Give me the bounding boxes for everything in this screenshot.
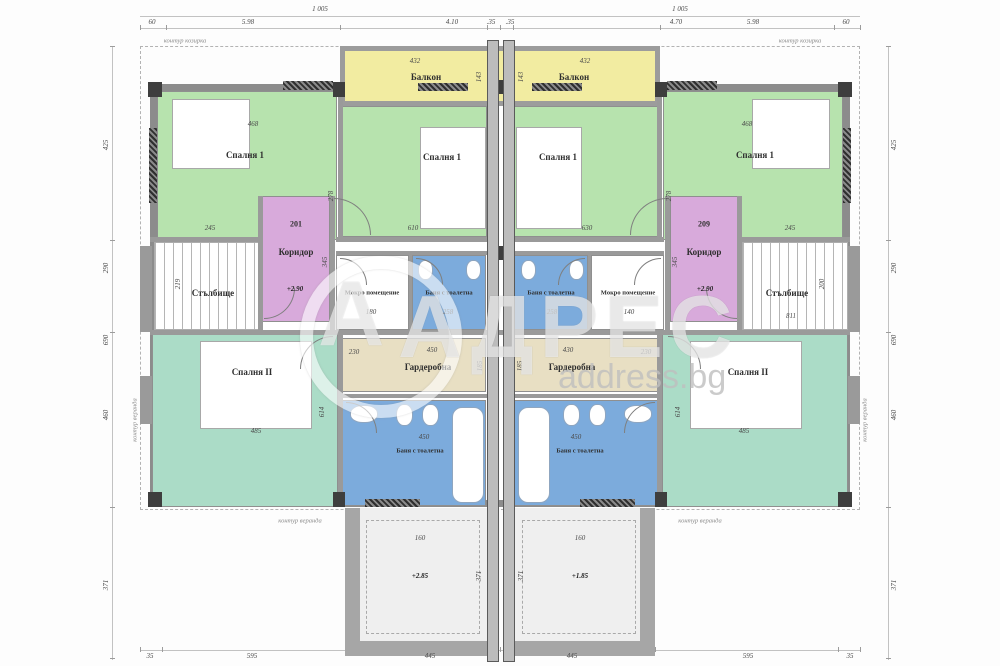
dim-left: 290 [102,263,110,274]
note-veranda: контур веранда [678,518,721,525]
column [838,492,852,507]
dim-tick [500,647,501,652]
room-label: Спалня II [728,367,769,377]
level-mark: +2.90 [287,285,303,293]
dim-tick [660,25,661,30]
room-label: Баня с тоалетна [425,290,472,297]
dim-label: 371 [517,571,525,582]
note-veranda: контур веранда [278,518,321,525]
bed [200,341,312,429]
dimension-line [140,16,860,17]
dim-label: 610 [408,224,419,232]
room-label: Спалня 1 [539,152,577,162]
column [148,82,162,97]
dim-label: 185 [476,361,484,372]
balcony-block [340,46,660,106]
wall-bump [140,246,152,332]
dim-tick [886,658,891,659]
dim-tick [860,25,861,30]
column [838,82,852,97]
dim-right: 371 [890,580,898,591]
window-hatch [283,81,333,90]
dim-top: 4.10 [446,18,458,26]
wall-segment [150,237,262,242]
dim-left: 460 [102,410,110,421]
dim-label: 450 [571,433,582,441]
dim-left: 690 [102,335,110,346]
room-label: Спалня 1 [226,150,264,160]
wall-bump [848,376,860,424]
note-veranda: контур веранда [862,398,869,441]
dim-tick [834,25,835,30]
wall-segment [342,394,487,398]
dim-label: 185 [516,361,524,372]
dim-tick [110,658,115,659]
room-label: Коридор [687,247,722,257]
dim-tick [110,240,115,241]
toilet [396,404,413,426]
dim-tick [110,507,115,508]
wall-segment [258,196,263,330]
dim-label: 430 [563,346,574,354]
toilet [563,404,580,426]
dim-label: 160 [575,534,586,542]
dim-tick [838,647,839,652]
window-hatch [418,83,468,91]
dim-top: .35 [506,18,515,26]
room-label: Спалня 1 [736,150,774,160]
dimension-line [888,46,889,660]
dim-tick [886,46,891,47]
bed [690,341,802,429]
wall-segment [588,255,591,330]
dim-label: 614 [318,407,326,418]
room-label: Гардеробна [549,362,596,372]
dim-top: .35 [487,18,496,26]
wall-segment [657,332,662,507]
bed [516,127,582,229]
room-label: Баня с тоалетна [396,448,443,455]
window-hatch [667,81,717,90]
dim-overall: 1 005 [672,5,688,13]
wall-segment [409,255,412,330]
dim-right: 460 [890,410,898,421]
room-label: Коридор [279,247,314,257]
dim-right: 690 [890,335,898,346]
wall-bump [140,376,152,424]
dim-label: 140 [624,308,635,316]
bathtub [452,407,484,503]
room-label: Стълбище [766,288,808,298]
dim-label: 143 [475,72,483,83]
column [655,492,667,507]
dim-label: 432 [410,57,421,65]
dim-label: 630 [582,224,593,232]
dim-label: 278 [327,191,335,202]
dim-label: 345 [321,257,329,268]
note-canopy: контур козирка [164,38,207,45]
toilet [589,404,606,426]
dim-tick [886,507,891,508]
room-label: Стълбище [192,288,234,298]
dim-tick [140,647,141,652]
room-label: Мокро помещение [601,290,655,297]
dim-label: 468 [742,120,753,128]
dimension-line [112,46,113,660]
room-staircase-left [154,242,260,330]
dim-label: 345 [671,257,679,268]
dim-tick [110,332,115,333]
dim-left: 425 [102,140,110,151]
dim-tick [110,46,115,47]
dim-label: 143 [517,72,525,83]
room-number: 201 [290,220,302,229]
level-mark: +2.85 [412,572,428,580]
dim-bottom: 595 [743,652,754,660]
dim-tick [886,332,891,333]
window-hatch [149,128,157,203]
dim-label: 258 [443,308,454,316]
toilet [422,404,439,426]
dim-label: 811 [786,312,796,320]
dim-tick [886,240,891,241]
dim-bottom: 445 [425,652,436,660]
wall-segment [336,237,487,242]
dim-bottom: 445 [567,652,578,660]
room-label: Балкон [411,72,441,82]
dim-label: 468 [248,120,259,128]
dim-tick [166,25,167,30]
dim-bottom: 35 [847,652,854,660]
dim-label: 485 [739,427,750,435]
dim-label: 450 [427,346,438,354]
dim-right: 290 [890,263,898,274]
dim-left: 371 [102,580,110,591]
dim-tick [140,25,141,30]
note-veranda: контур веранда [132,398,139,441]
dim-tick [500,25,501,30]
wall-segment [737,196,742,330]
note-canopy: контур козирка [779,38,822,45]
dim-tick [655,647,656,652]
dim-label: 200 [818,279,826,290]
dim-label: 278 [665,191,673,202]
wall-segment [738,237,850,242]
room-label: Балкон [559,72,589,82]
room-label: Спалня II [232,367,273,377]
column [333,82,345,97]
dim-top: 4.70 [670,18,682,26]
window-hatch [532,83,582,91]
dim-label: 258 [547,308,558,316]
sink [466,260,481,280]
column [148,492,162,507]
dim-label: 450 [419,433,430,441]
dim-label: 432 [580,57,591,65]
column [655,82,667,97]
sink [521,260,536,280]
wall-segment [513,394,658,398]
dim-label: 219 [174,279,182,290]
window-hatch [365,499,420,507]
room-number: 209 [698,220,710,229]
room-label: Баня с тоалетна [556,448,603,455]
wall-segment [150,330,850,335]
dim-top: 60 [149,18,156,26]
bathtub [518,407,550,503]
party-wall-right-leaf [503,40,515,662]
dim-bottom: 35 [147,652,154,660]
dim-label: 230 [641,348,652,356]
room-label: Спалня 1 [423,152,461,162]
dim-label: 371 [475,571,483,582]
dim-label: 245 [785,224,796,232]
dim-bottom: 595 [247,652,258,660]
dim-top: 60 [843,18,850,26]
level-mark: +1.85 [572,572,588,580]
dim-label: 614 [674,407,682,418]
dim-overall: 1 005 [312,5,328,13]
column [333,492,345,507]
window-hatch [843,128,851,203]
dim-label: 160 [415,534,426,542]
floor-plan: Спалня 1 468 245 278 Балкон 432 143 Спал… [0,0,1000,666]
bed [420,127,486,229]
dim-tick [340,25,341,30]
dim-label: 230 [349,348,360,356]
dim-top: 5.98 [242,18,254,26]
dim-tick [860,647,861,652]
dim-label: 245 [205,224,216,232]
room-label: Баня с тоалетна [527,290,574,297]
dim-top: 5.98 [747,18,759,26]
room-label: Мокро помещение [345,290,399,297]
room-label: Гардеробна [405,362,452,372]
level-mark: +2.90 [697,285,713,293]
wall-bump [848,246,860,332]
party-wall-left-leaf [487,40,499,662]
dim-label: 485 [251,427,262,435]
wall-segment [338,332,343,507]
wall-segment [513,237,664,242]
dim-label: 180 [366,308,377,316]
dim-right: 425 [890,140,898,151]
dim-tick [162,647,163,652]
window-hatch [580,499,635,507]
